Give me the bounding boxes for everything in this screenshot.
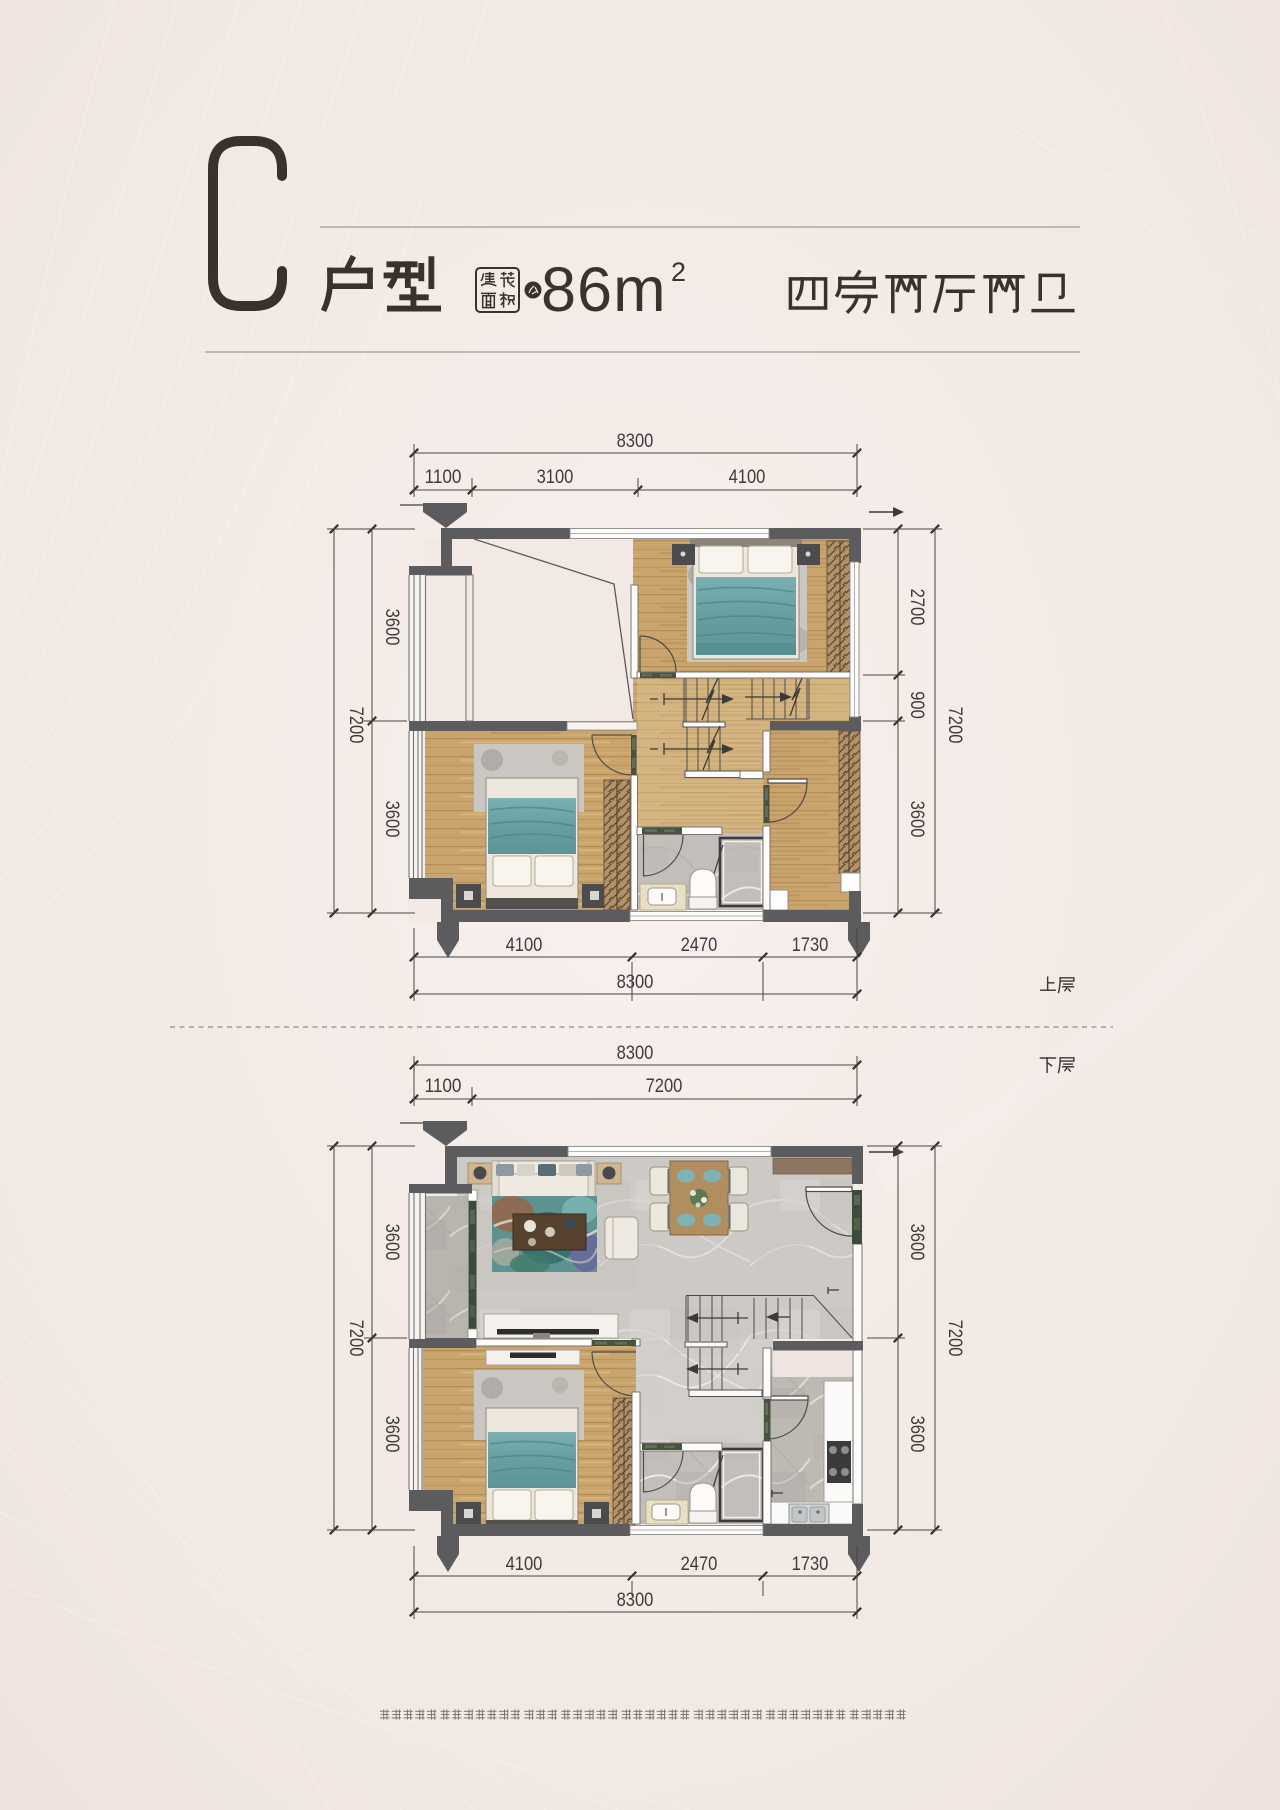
svg-text:3600: 3600 xyxy=(906,1224,927,1261)
svg-text:3600: 3600 xyxy=(381,609,402,646)
svg-text:1100: 1100 xyxy=(425,467,462,488)
svg-text:4100: 4100 xyxy=(729,467,766,488)
svg-text:3600: 3600 xyxy=(381,1416,402,1453)
svg-text:1100: 1100 xyxy=(425,1076,462,1097)
svg-text:3600: 3600 xyxy=(906,801,927,838)
svg-text:2700: 2700 xyxy=(906,589,927,626)
svg-text:4100: 4100 xyxy=(506,1554,543,1575)
svg-text:2470: 2470 xyxy=(681,935,718,956)
svg-text:7200: 7200 xyxy=(646,1076,683,1097)
svg-text:3100: 3100 xyxy=(537,467,574,488)
svg-text:2: 2 xyxy=(671,257,686,287)
svg-text:7200: 7200 xyxy=(944,707,965,744)
svg-text:7200: 7200 xyxy=(944,1320,965,1357)
svg-text:3600: 3600 xyxy=(381,801,402,838)
svg-text:7200: 7200 xyxy=(345,707,366,744)
svg-text:7200: 7200 xyxy=(345,1320,366,1357)
svg-text:8300: 8300 xyxy=(617,431,654,452)
svg-text:3600: 3600 xyxy=(381,1224,402,1261)
svg-text:8300: 8300 xyxy=(617,1590,654,1611)
svg-text:8300: 8300 xyxy=(617,972,654,993)
svg-text:8300: 8300 xyxy=(617,1043,654,1064)
svg-text:900: 900 xyxy=(906,691,927,719)
svg-text:3600: 3600 xyxy=(906,1416,927,1453)
svg-text:2470: 2470 xyxy=(681,1554,718,1575)
svg-text:4100: 4100 xyxy=(506,935,543,956)
svg-text:1730: 1730 xyxy=(792,1554,829,1575)
svg-text:1730: 1730 xyxy=(792,935,829,956)
svg-text:86m: 86m xyxy=(541,255,667,325)
